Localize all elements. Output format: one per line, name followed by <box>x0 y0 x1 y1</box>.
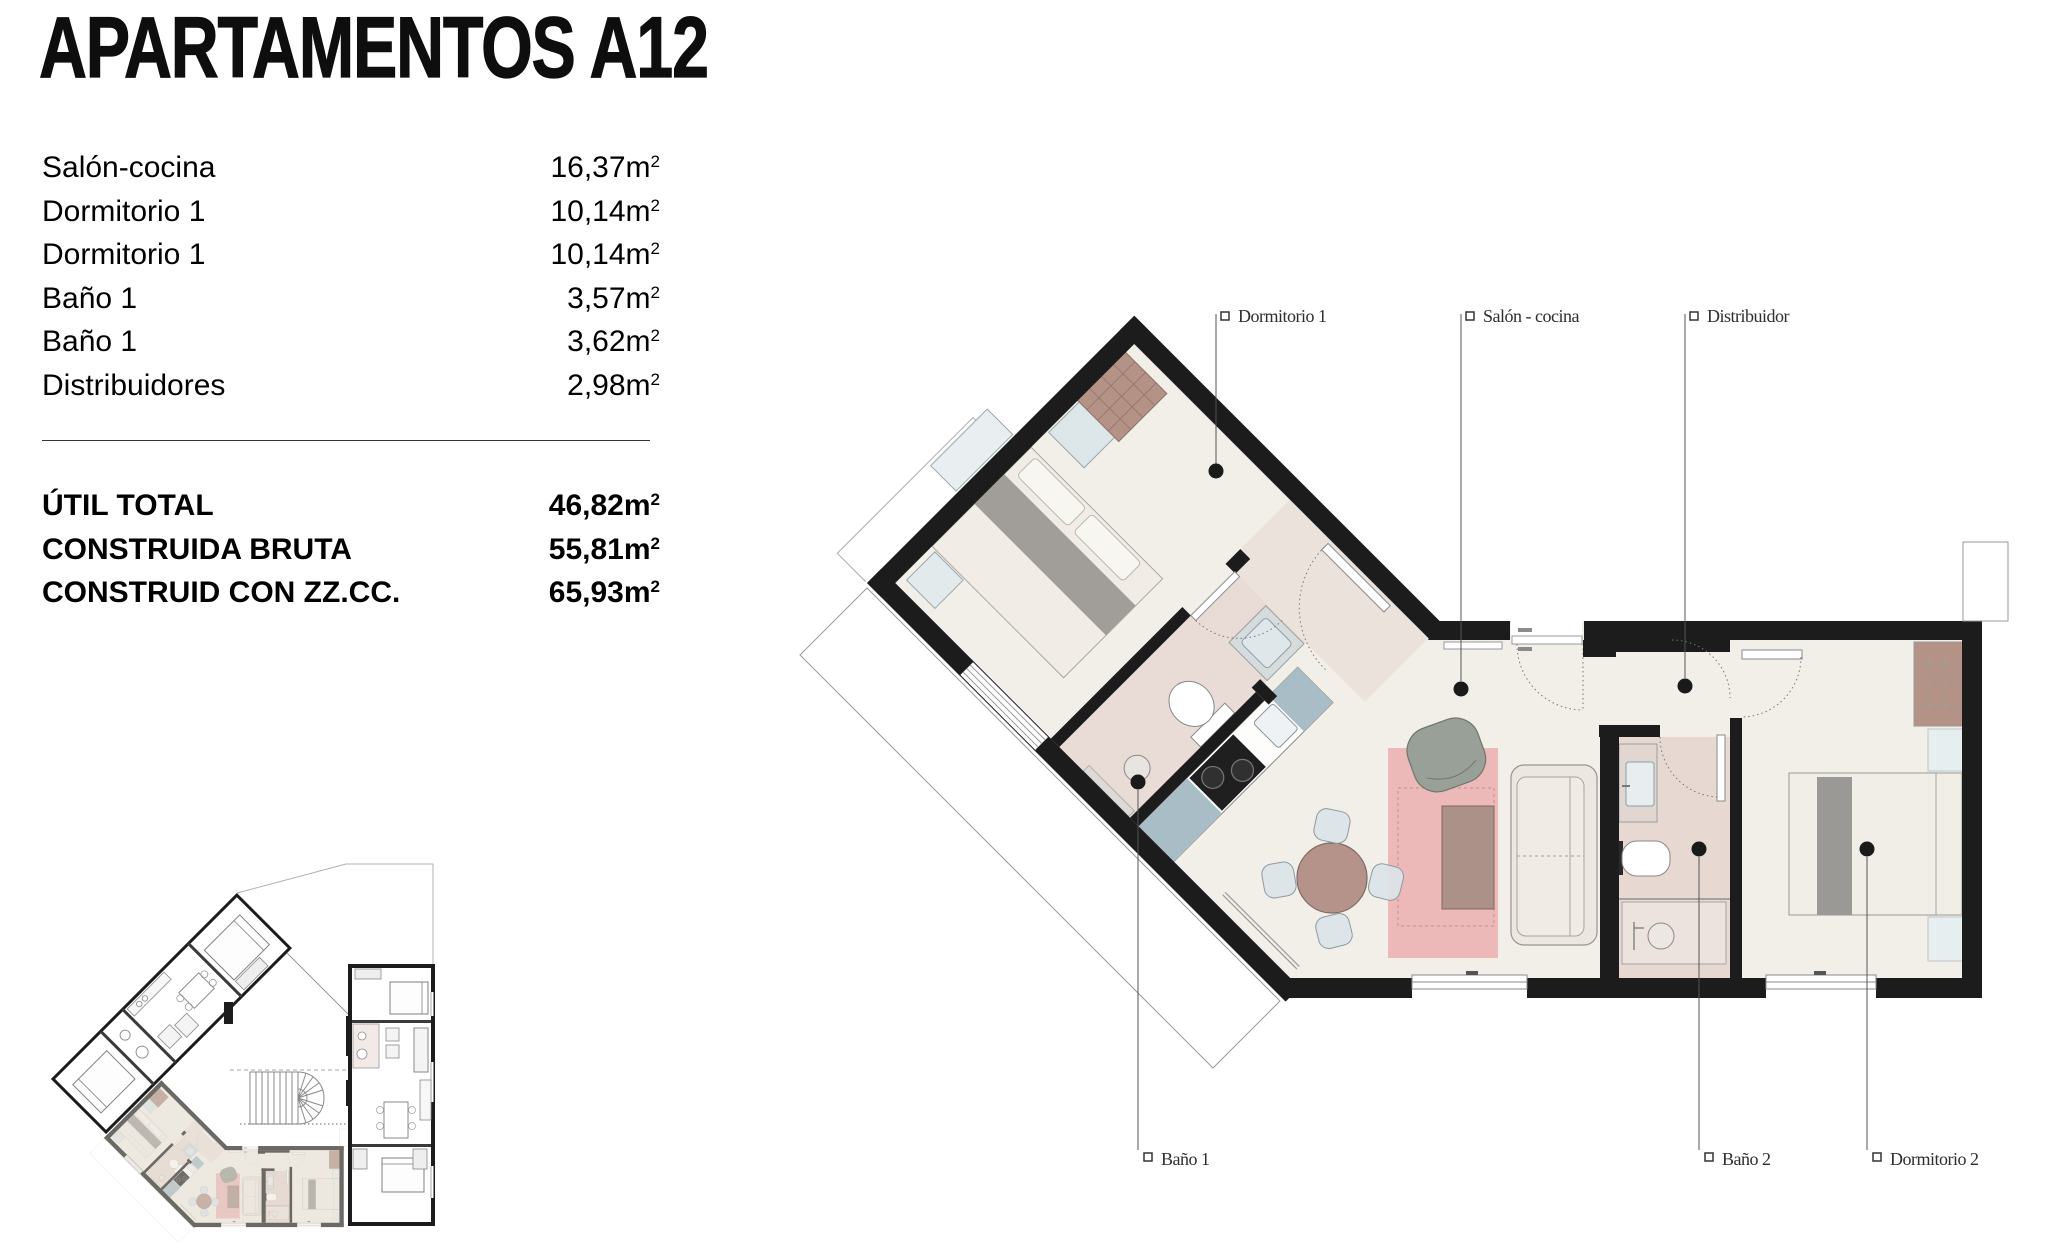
svg-text:Salón - cocina: Salón - cocina <box>1483 306 1579 326</box>
svg-text:Distribuidor: Distribuidor <box>1707 306 1790 326</box>
svg-text:Baño 1: Baño 1 <box>1161 1149 1210 1169</box>
svg-text:Dormitorio 2: Dormitorio 2 <box>1890 1149 1979 1169</box>
svg-text:Dormitorio 1: Dormitorio 1 <box>1238 306 1327 326</box>
svg-text:Baño 2: Baño 2 <box>1722 1149 1771 1169</box>
